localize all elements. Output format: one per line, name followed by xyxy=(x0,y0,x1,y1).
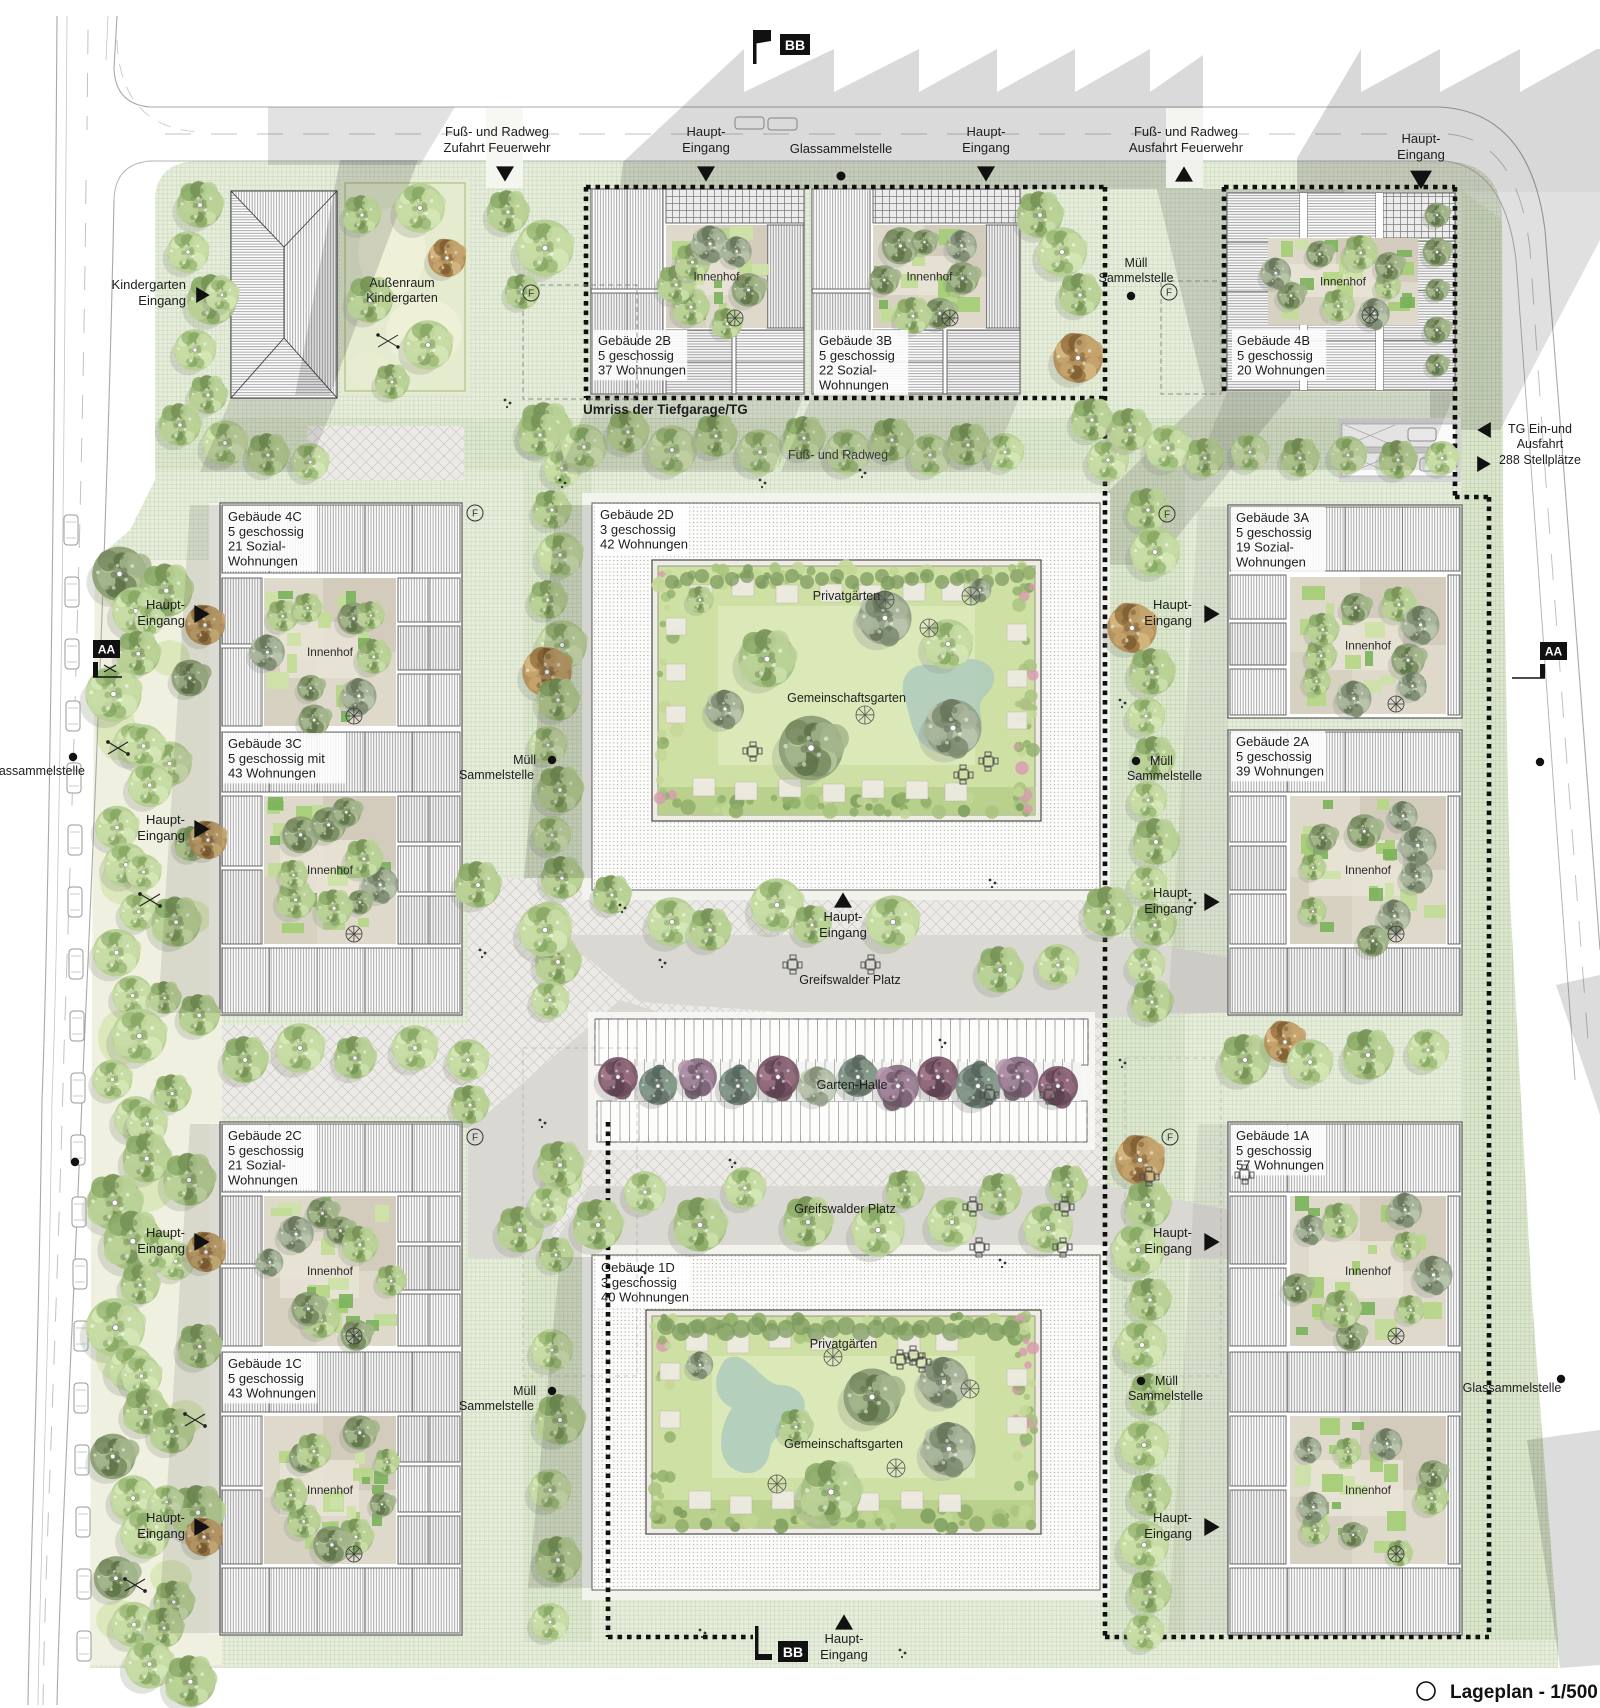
svg-text:3 geschossig: 3 geschossig xyxy=(601,1275,677,1290)
svg-text:22 Sozial-: 22 Sozial- xyxy=(819,363,877,378)
svg-text:Haupt-: Haupt- xyxy=(1153,597,1192,612)
svg-text:Gebäude 2B: Gebäude 2B xyxy=(598,333,671,348)
svg-text:288 Stellplätze: 288 Stellplätze xyxy=(1499,453,1581,467)
svg-text:5 geschossig: 5 geschossig xyxy=(228,1143,304,1158)
svg-text:Eingang: Eingang xyxy=(137,1526,185,1541)
svg-text:AA: AA xyxy=(98,643,116,657)
svg-text:Glassammelstelle: Glassammelstelle xyxy=(790,141,893,156)
svg-text:Gemeinschaftsgarten: Gemeinschaftsgarten xyxy=(787,691,906,705)
svg-text:Eingang: Eingang xyxy=(1144,1526,1192,1541)
svg-text:Wohnungen: Wohnungen xyxy=(228,553,298,568)
svg-text:Eingang: Eingang xyxy=(1144,613,1192,628)
svg-text:Wohnungen: Wohnungen xyxy=(228,1172,298,1187)
svg-text:Gebäude 3C: Gebäude 3C xyxy=(228,736,302,751)
svg-text:Ausfahrt Feuerwehr: Ausfahrt Feuerwehr xyxy=(1129,140,1244,155)
svg-text:21 Sozial-: 21 Sozial- xyxy=(228,539,286,554)
svg-text:Kindergarten: Kindergarten xyxy=(112,277,186,292)
svg-text:Eingang: Eingang xyxy=(1144,901,1192,916)
svg-text:BB: BB xyxy=(783,1644,803,1660)
svg-text:Eingang: Eingang xyxy=(1144,1241,1192,1256)
svg-text:Umriss der Tiefgarage/TG: Umriss der Tiefgarage/TG xyxy=(583,402,748,417)
svg-text:Garten-Halle: Garten-Halle xyxy=(817,1078,888,1092)
svg-text:Haupt-: Haupt- xyxy=(146,1225,185,1240)
svg-text:F: F xyxy=(1164,510,1170,521)
svg-text:5 geschossig: 5 geschossig xyxy=(598,348,674,363)
svg-text:21 Sozial-: 21 Sozial- xyxy=(228,1158,286,1173)
svg-text:Greifswalder Platz: Greifswalder Platz xyxy=(794,1202,895,1216)
svg-text:19 Sozial-: 19 Sozial- xyxy=(1236,540,1294,555)
svg-text:Eingang: Eingang xyxy=(819,925,867,940)
svg-text:Haupt-: Haupt- xyxy=(146,597,185,612)
svg-text:Innenhof: Innenhof xyxy=(1345,639,1392,653)
svg-text:Sammelstelle: Sammelstelle xyxy=(459,1399,534,1413)
svg-text:Sammelstelle: Sammelstelle xyxy=(1127,769,1202,783)
svg-text:Gebäude 1C: Gebäude 1C xyxy=(228,1356,302,1371)
svg-text:Innenhof: Innenhof xyxy=(907,270,954,284)
svg-text:Glassammelstelle: Glassammelstelle xyxy=(1463,1381,1562,1395)
svg-text:Gebäude 1A: Gebäude 1A xyxy=(1236,1128,1309,1143)
svg-text:Haupt-: Haupt- xyxy=(1401,131,1440,146)
svg-text:Glassammelstelle: Glassammelstelle xyxy=(0,764,85,778)
svg-text:Kindergarten: Kindergarten xyxy=(366,291,438,305)
svg-text:43 Wohnungen: 43 Wohnungen xyxy=(228,766,316,781)
svg-text:Fuß- und Radweg: Fuß- und Radweg xyxy=(788,448,888,462)
svg-text:5 geschossig: 5 geschossig xyxy=(228,1371,304,1386)
svg-text:Eingang: Eingang xyxy=(962,140,1010,155)
svg-text:Innenhof: Innenhof xyxy=(307,863,354,877)
svg-text:Eingang: Eingang xyxy=(137,613,185,628)
svg-text:39 Wohnungen: 39 Wohnungen xyxy=(1236,764,1324,779)
svg-text:Innenhof: Innenhof xyxy=(307,1483,354,1497)
svg-text:Ausfahrt: Ausfahrt xyxy=(1517,437,1564,451)
svg-text:3 geschossig: 3 geschossig xyxy=(600,522,676,537)
svg-text:Eingang: Eingang xyxy=(138,293,186,308)
svg-text:Sammelstelle: Sammelstelle xyxy=(1128,1389,1203,1403)
svg-text:37 Wohnungen: 37 Wohnungen xyxy=(598,363,686,378)
svg-text:Haupt-: Haupt- xyxy=(1153,885,1192,900)
svg-text:Privatgärten: Privatgärten xyxy=(810,1337,877,1351)
svg-text:Gebäude 4C: Gebäude 4C xyxy=(228,509,302,524)
svg-text:Sammelstelle: Sammelstelle xyxy=(1098,271,1173,285)
svg-text:5 geschossig mit: 5 geschossig mit xyxy=(228,751,325,766)
svg-text:Innenhof: Innenhof xyxy=(1345,1483,1392,1497)
svg-text:AA: AA xyxy=(1545,645,1563,659)
svg-text:Müll: Müll xyxy=(513,753,536,767)
svg-text:Haupt-: Haupt- xyxy=(1153,1510,1192,1525)
svg-text:Innenhof: Innenhof xyxy=(694,270,741,284)
svg-text:Privatgärten: Privatgärten xyxy=(813,589,880,603)
svg-text:Haupt-: Haupt- xyxy=(146,1510,185,1525)
svg-text:TG Ein-und: TG Ein-und xyxy=(1508,422,1572,436)
svg-text:Gebäude 3A: Gebäude 3A xyxy=(1236,510,1309,525)
svg-text:Gebäude 2A: Gebäude 2A xyxy=(1236,734,1309,749)
svg-text:F: F xyxy=(528,289,534,300)
svg-text:Müll: Müll xyxy=(1125,256,1148,270)
svg-text:Eingang: Eingang xyxy=(137,1241,185,1256)
svg-text:Eingang: Eingang xyxy=(137,828,185,843)
svg-text:Innenhof: Innenhof xyxy=(307,1264,354,1278)
svg-text:Innenhof: Innenhof xyxy=(1345,863,1392,877)
svg-text:F: F xyxy=(472,1133,478,1144)
svg-text:Außenraum: Außenraum xyxy=(369,276,434,290)
svg-text:Gebäude 4B: Gebäude 4B xyxy=(1237,333,1310,348)
svg-text:Innenhof: Innenhof xyxy=(1320,275,1367,289)
svg-text:5 geschossig: 5 geschossig xyxy=(819,348,895,363)
svg-text:43 Wohnungen: 43 Wohnungen xyxy=(228,1386,316,1401)
svg-text:20 Wohnungen: 20 Wohnungen xyxy=(1237,363,1325,378)
svg-text:Lageplan - 1/500: Lageplan - 1/500 xyxy=(1450,1682,1598,1703)
svg-text:Eingang: Eingang xyxy=(682,140,730,155)
svg-text:F: F xyxy=(472,509,478,520)
svg-text:Müll: Müll xyxy=(513,1384,536,1398)
svg-text:Haupt-: Haupt- xyxy=(823,909,862,924)
svg-text:5 geschossig: 5 geschossig xyxy=(228,524,304,539)
svg-text:Gebäude 3B: Gebäude 3B xyxy=(819,333,892,348)
svg-text:42 Wohnungen: 42 Wohnungen xyxy=(600,537,688,552)
svg-text:Wohnungen: Wohnungen xyxy=(1236,554,1306,569)
svg-text:Wohnungen: Wohnungen xyxy=(819,377,889,392)
svg-text:Haupt-: Haupt- xyxy=(1153,1225,1192,1240)
svg-text:40 Wohnungen: 40 Wohnungen xyxy=(601,1290,689,1305)
svg-text:Gebäude 2D: Gebäude 2D xyxy=(600,507,674,522)
svg-text:Fuß- und Radweg: Fuß- und Radweg xyxy=(445,124,549,139)
svg-text:Greifswalder Platz: Greifswalder Platz xyxy=(799,973,900,987)
svg-text:Gemeinschaftsgarten: Gemeinschaftsgarten xyxy=(784,1437,903,1451)
svg-text:5 geschossig: 5 geschossig xyxy=(1236,1143,1312,1158)
svg-text:5 geschossig: 5 geschossig xyxy=(1236,525,1312,540)
svg-text:F: F xyxy=(1167,1133,1173,1144)
svg-text:Sammelstelle: Sammelstelle xyxy=(459,768,534,782)
svg-text:Eingang: Eingang xyxy=(1397,147,1445,162)
svg-text:Haupt-: Haupt- xyxy=(686,124,725,139)
svg-text:5 geschossig: 5 geschossig xyxy=(1236,749,1312,764)
svg-text:Gebäude 2C: Gebäude 2C xyxy=(228,1128,302,1143)
svg-text:Eingang: Eingang xyxy=(820,1647,868,1662)
svg-text:Fuß- und Radweg: Fuß- und Radweg xyxy=(1134,124,1238,139)
svg-text:5 geschossig: 5 geschossig xyxy=(1237,348,1313,363)
svg-text:Müll: Müll xyxy=(1150,754,1173,768)
svg-text:Zufahrt Feuerwehr: Zufahrt Feuerwehr xyxy=(444,140,552,155)
svg-text:BB: BB xyxy=(785,37,805,53)
svg-text:Innenhof: Innenhof xyxy=(1345,1264,1392,1278)
svg-text:Haupt-: Haupt- xyxy=(966,124,1005,139)
svg-text:Innenhof: Innenhof xyxy=(307,645,354,659)
svg-text:Gebäude 1D: Gebäude 1D xyxy=(601,1260,675,1275)
svg-text:Haupt-: Haupt- xyxy=(146,812,185,827)
svg-text:F: F xyxy=(1166,288,1172,299)
svg-text:Haupt-: Haupt- xyxy=(824,1631,863,1646)
svg-text:Müll: Müll xyxy=(1155,1374,1178,1388)
